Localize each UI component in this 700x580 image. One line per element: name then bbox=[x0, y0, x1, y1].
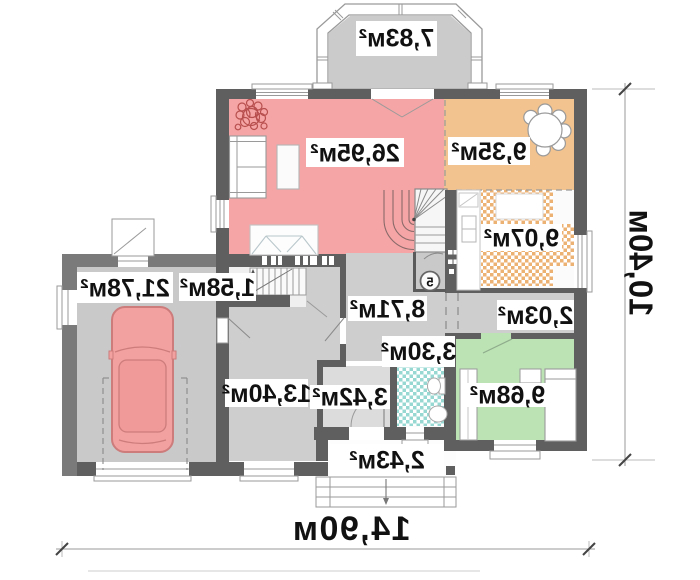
svg-text:8,71м²: 8,71м² bbox=[350, 296, 425, 324]
svg-text:26,95м²: 26,95м² bbox=[310, 140, 399, 168]
svg-text:21,78м²: 21,78м² bbox=[80, 275, 169, 303]
svg-text:3,30м²: 3,30м² bbox=[381, 338, 456, 366]
svg-text:9,68м²: 9,68м² bbox=[470, 382, 545, 410]
svg-text:2,43м²: 2,43м² bbox=[349, 447, 424, 475]
svg-text:10,40м: 10,40м bbox=[623, 210, 660, 317]
svg-text:9,35м²: 9,35м² bbox=[451, 138, 526, 166]
svg-text:2,03м²: 2,03м² bbox=[498, 302, 573, 330]
svg-text:5: 5 bbox=[426, 275, 433, 290]
svg-text:1,58м²: 1,58м² bbox=[180, 274, 255, 302]
svg-text:7,83м²: 7,83м² bbox=[359, 25, 434, 53]
svg-text:13,40м²: 13,40м² bbox=[222, 380, 311, 408]
svg-text:9,07м²: 9,07м² bbox=[484, 225, 559, 253]
svg-text:3,42м²: 3,42м² bbox=[312, 384, 387, 412]
svg-text:14,90м: 14,90м bbox=[291, 510, 410, 548]
